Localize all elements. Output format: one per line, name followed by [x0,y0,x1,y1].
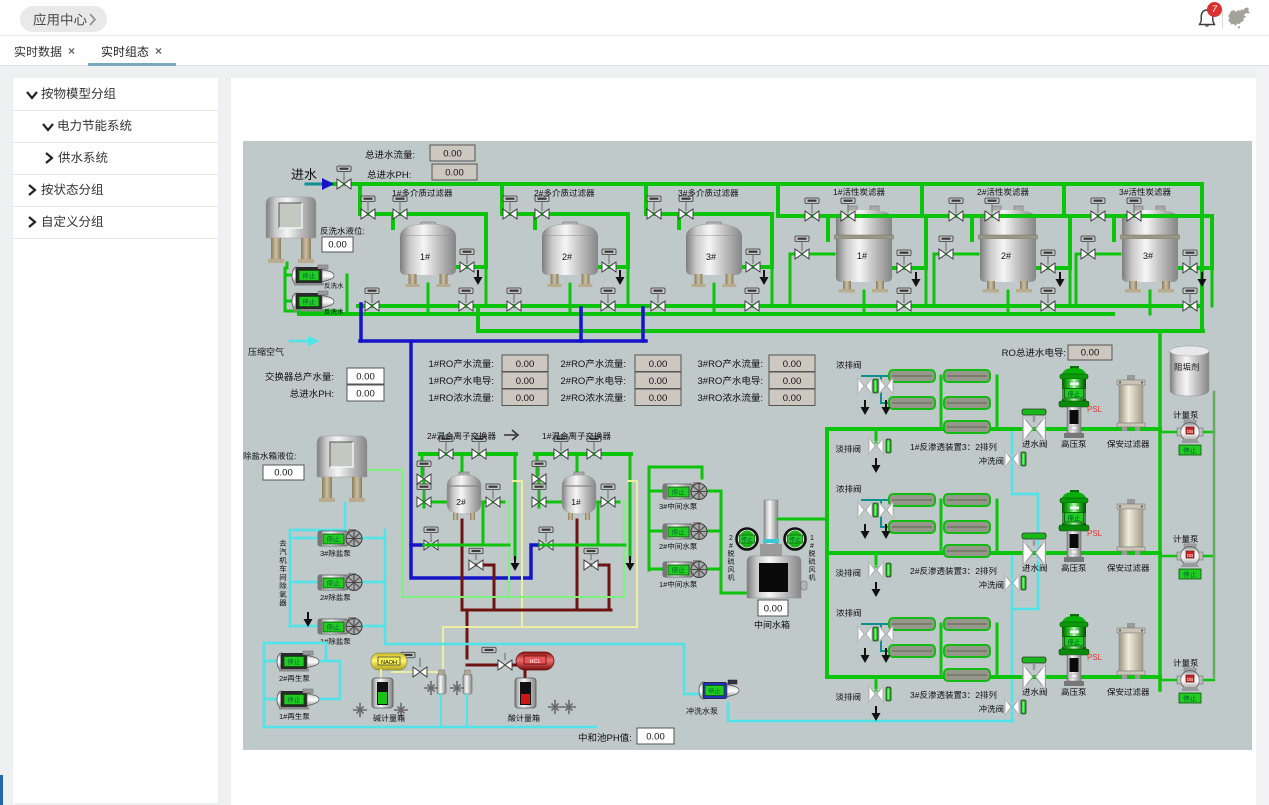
svg-text:3: 3 [962,566,967,576]
svg-text:3#RO: 3#RO [698,393,723,404]
svg-text:2: 2 [729,535,733,542]
svg-text::: : [760,359,763,370]
svg-text::: : [294,451,296,461]
svg-text:2#RO: 2#RO [561,359,586,370]
svg-text::: : [623,393,626,404]
svg-text:0.00: 0.00 [646,732,665,743]
svg-text:3#: 3# [1143,251,1153,261]
svg-text:NAOH: NAOH [381,660,397,666]
svg-text:0.00: 0.00 [516,359,535,370]
svg-text:1#: 1# [392,188,402,198]
svg-text:2#: 2# [659,542,668,551]
svg-text:0.00: 0.00 [649,393,668,404]
svg-text:1#: 1# [571,497,581,507]
svg-text:0.00: 0.00 [649,359,668,370]
svg-text:2: 2 [975,690,980,700]
svg-text:2#: 2# [977,187,987,197]
svg-text:3#RO: 3#RO [698,376,723,387]
svg-text:2#: 2# [279,674,288,683]
svg-text:1#RO: 1#RO [429,359,454,370]
svg-text:0.00: 0.00 [1081,348,1100,359]
svg-text:3#: 3# [659,502,668,511]
svg-text:2#RO: 2#RO [561,376,586,387]
svg-text:1#RO: 1#RO [429,393,454,404]
svg-text:0.00: 0.00 [443,149,462,160]
svg-text:0.00: 0.00 [356,372,375,383]
svg-text:2: 2 [975,566,980,576]
svg-text::: : [1063,348,1066,359]
svg-text:0.00: 0.00 [328,240,347,251]
svg-text:3#: 3# [706,252,716,262]
svg-text:2: 2 [975,442,980,452]
svg-text:#: # [729,543,733,550]
svg-text:2#: 2# [1001,251,1011,261]
svg-text:2#: 2# [456,497,466,507]
svg-text:HCL: HCL [530,659,541,665]
svg-text::: : [491,359,494,370]
svg-text:3#RO: 3#RO [698,359,723,370]
svg-text:PSL: PSL [1087,653,1103,662]
svg-text::: : [760,376,763,387]
svg-text:1: 1 [810,535,814,542]
svg-text::: : [623,376,626,387]
svg-text:0.00: 0.00 [274,468,293,479]
svg-text::: : [331,372,334,383]
svg-text:2#: 2# [562,252,572,262]
svg-text:1#: 1# [320,637,329,646]
svg-text:0.00: 0.00 [356,389,375,400]
svg-text:1#: 1# [420,252,430,262]
svg-text:2#: 2# [910,566,920,576]
svg-text:0.00: 0.00 [783,393,802,404]
svg-text:PSL: PSL [1087,529,1103,538]
svg-text:1#: 1# [857,251,867,261]
svg-text::: : [491,376,494,387]
svg-text:RO: RO [1002,348,1016,359]
svg-text:1#: 1# [279,712,288,721]
svg-text::: : [491,393,494,404]
svg-text::: : [760,393,763,404]
svg-text::: : [623,359,626,370]
svg-text:1#: 1# [542,431,552,441]
svg-text:3#: 3# [910,690,920,700]
svg-text:2#: 2# [320,593,329,602]
svg-text:2#: 2# [427,431,437,441]
svg-text:0.00: 0.00 [649,376,668,387]
svg-text:0.00: 0.00 [445,168,464,179]
svg-text:1#RO: 1#RO [429,376,454,387]
svg-text:PSL: PSL [1087,405,1103,414]
svg-text:0.00: 0.00 [764,604,783,615]
svg-text::: : [413,150,416,161]
svg-text:0.00: 0.00 [516,393,535,404]
svg-text:3#: 3# [678,188,688,198]
svg-text:3#: 3# [320,549,329,558]
svg-text:PH:: PH: [318,389,334,400]
svg-text:2#RO: 2#RO [561,393,586,404]
svg-text::: : [363,226,365,236]
svg-text:0.00: 0.00 [516,376,535,387]
svg-text:1#: 1# [910,442,920,452]
svg-text:2#: 2# [534,188,544,198]
svg-text:1#: 1# [833,187,843,197]
svg-text:3#: 3# [1119,187,1129,197]
svg-text:0.00: 0.00 [783,376,802,387]
svg-text::: : [629,733,632,744]
svg-text:3: 3 [962,690,967,700]
svg-text:PH:: PH: [396,170,412,181]
svg-text:#: # [810,543,814,550]
svg-text:PH: PH [607,733,620,744]
svg-text:1#: 1# [659,580,668,589]
svg-text:3: 3 [962,442,967,452]
svg-text:0.00: 0.00 [783,359,802,370]
